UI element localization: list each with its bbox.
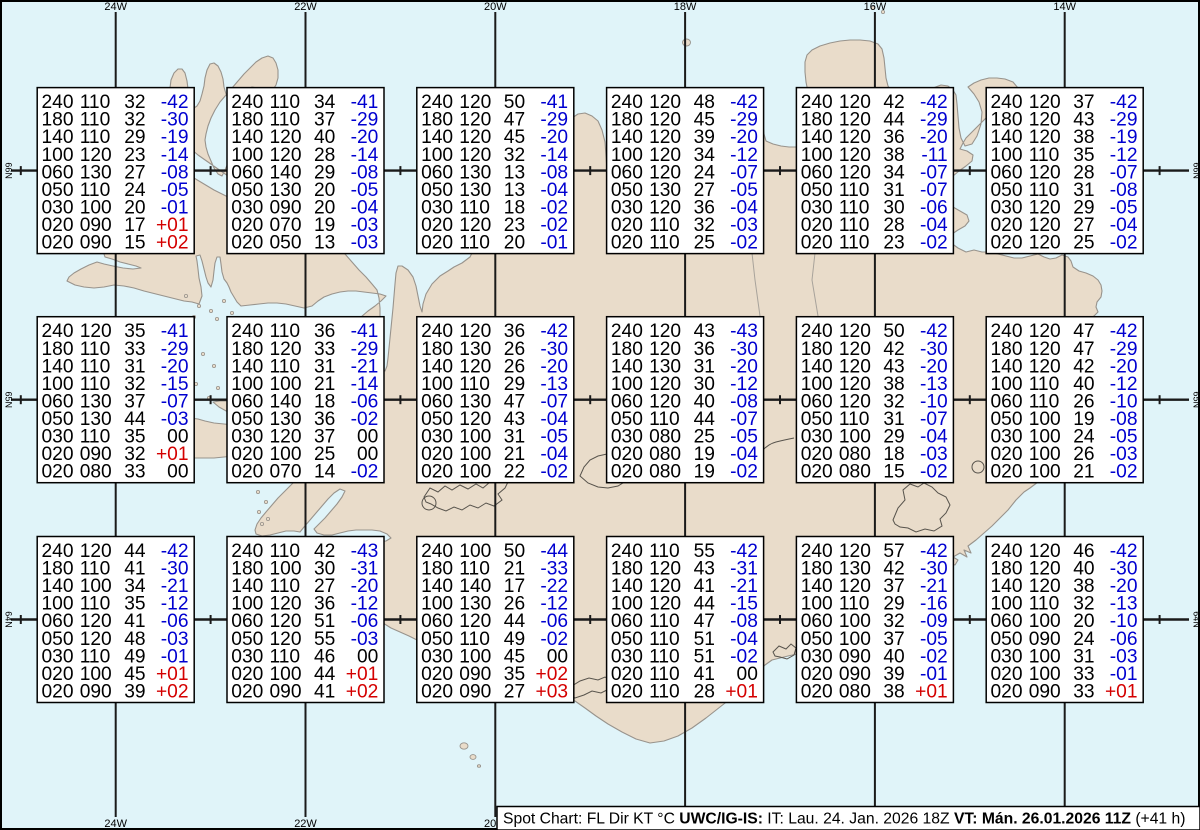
svg-text:-02: -02 bbox=[540, 462, 568, 483]
svg-text:02010021: 02010021 bbox=[991, 462, 1095, 483]
svg-text:02009033: 02009033 bbox=[991, 682, 1095, 703]
svg-text:02008019: 02008019 bbox=[611, 462, 715, 483]
svg-text:02012025: 02012025 bbox=[991, 233, 1095, 254]
svg-text:+02: +02 bbox=[346, 682, 379, 703]
svg-text:24W: 24W bbox=[104, 1, 127, 13]
svg-text:-02: -02 bbox=[920, 233, 948, 254]
svg-text:18W: 18W bbox=[674, 1, 697, 13]
svg-text:+01: +01 bbox=[1105, 682, 1138, 703]
svg-text:-02: -02 bbox=[1110, 233, 1138, 254]
svg-text:22W: 22W bbox=[294, 1, 317, 13]
svg-text:02009027: 02009027 bbox=[421, 682, 525, 703]
svg-text:02008015: 02008015 bbox=[801, 462, 905, 483]
svg-text:64N: 64N bbox=[4, 611, 14, 628]
svg-text:-02: -02 bbox=[351, 462, 379, 483]
svg-text:02009041: 02009041 bbox=[231, 682, 335, 703]
svg-text:02009039: 02009039 bbox=[42, 682, 146, 703]
svg-text:16W: 16W bbox=[864, 1, 887, 13]
svg-text:-01: -01 bbox=[540, 233, 568, 254]
svg-text:20W: 20W bbox=[484, 1, 507, 13]
svg-text:-02: -02 bbox=[920, 462, 948, 483]
svg-text:Spot Chart: FL Dir KT °C UWC/I: Spot Chart: FL Dir KT °C UWC/IG-IS: IT: … bbox=[503, 811, 1185, 828]
svg-text:14W: 14W bbox=[1053, 1, 1076, 13]
svg-text:-02: -02 bbox=[730, 462, 758, 483]
svg-text:-03: -03 bbox=[351, 233, 379, 254]
svg-text:02008038: 02008038 bbox=[801, 682, 905, 703]
svg-text:+01: +01 bbox=[915, 682, 948, 703]
svg-text:65N: 65N bbox=[4, 391, 14, 408]
svg-text:-02: -02 bbox=[1110, 462, 1138, 483]
svg-text:66N: 66N bbox=[4, 162, 14, 179]
svg-text:02010022: 02010022 bbox=[421, 462, 525, 483]
svg-text:02011028: 02011028 bbox=[611, 682, 715, 703]
svg-text:02011020: 02011020 bbox=[421, 233, 525, 254]
svg-text:02011025: 02011025 bbox=[611, 233, 715, 254]
svg-text:02009015: 02009015 bbox=[42, 233, 146, 254]
svg-text:+02: +02 bbox=[156, 233, 189, 254]
svg-text:+02: +02 bbox=[156, 682, 189, 703]
svg-text:02005013: 02005013 bbox=[231, 233, 335, 254]
svg-text:02007014: 02007014 bbox=[231, 462, 335, 483]
svg-text:02008033: 02008033 bbox=[42, 462, 146, 483]
svg-text:02011023: 02011023 bbox=[801, 233, 905, 254]
svg-text:+01: +01 bbox=[725, 682, 758, 703]
svg-text:-02: -02 bbox=[730, 233, 758, 254]
svg-text:00: 00 bbox=[167, 462, 188, 483]
svg-text:+03: +03 bbox=[536, 682, 569, 703]
